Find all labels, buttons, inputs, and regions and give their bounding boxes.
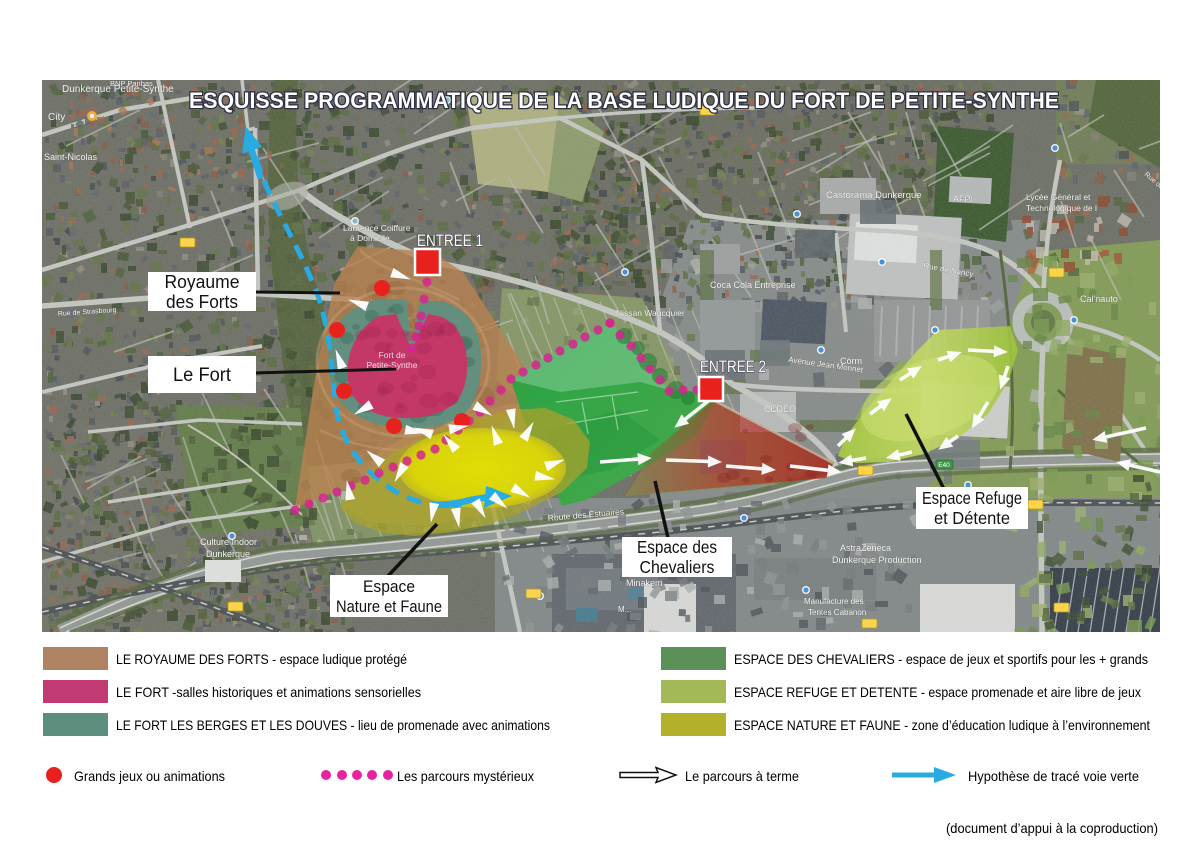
svg-text:Espace Refuge: Espace Refuge — [922, 488, 1022, 508]
svg-text:(document d’appui à la coprodu: (document d’appui à la coproduction) — [946, 820, 1158, 836]
svg-text:Lycée Général et: Lycée Général et — [1026, 192, 1091, 202]
svg-text:CEDEO: CEDEO — [764, 404, 796, 414]
svg-text:Hypothèse de tracé voie verte: Hypothèse de tracé voie verte — [968, 769, 1139, 784]
svg-text:AFPI: AFPI — [953, 194, 973, 204]
svg-text:Nature et Faune: Nature et Faune — [336, 597, 442, 616]
svg-text:des Forts: des Forts — [166, 291, 238, 312]
svg-text:Grands jeux ou animations: Grands jeux ou animations — [74, 769, 225, 784]
svg-text:Les parcours mystérieux: Les parcours mystérieux — [397, 769, 534, 784]
svg-text:ESQUISSE PROGRAMMATIQUE DE LA: ESQUISSE PROGRAMMATIQUE DE LA BASE LUDIQ… — [189, 88, 1059, 113]
svg-text:Cal'nauto: Cal'nauto — [1080, 294, 1118, 304]
svg-text:Tentes Cabanon: Tentes Cabanon — [808, 608, 866, 617]
svg-text:Fort de: Fort de — [379, 350, 406, 360]
svg-text:City: City — [48, 112, 65, 123]
svg-text:Minakem: Minakem — [626, 578, 663, 588]
svg-text:LE FORT LES BERGES ET LES DOUV: LE FORT LES BERGES ET LES DOUVES - lieu … — [116, 718, 550, 733]
svg-text:BNP Paribas: BNP Paribas — [110, 79, 153, 88]
svg-text:et Détente: et Détente — [934, 508, 1010, 528]
svg-text:Dunkerque: Dunkerque — [206, 549, 250, 559]
svg-text:à Domicile: à Domicile — [350, 233, 390, 243]
svg-text:Chevaliers: Chevaliers — [640, 557, 715, 577]
svg-text:ENTREE 1: ENTREE 1 — [417, 231, 483, 250]
svg-text:Dunkerque Production: Dunkerque Production — [832, 555, 922, 565]
svg-text:Saint-Nicolas: Saint-Nicolas — [44, 152, 98, 162]
svg-text:Espace des: Espace des — [637, 537, 717, 557]
svg-text:AstraZeneca: AstraZeneca — [840, 543, 891, 553]
svg-text:Le Fort: Le Fort — [173, 365, 232, 386]
svg-text:LE ROYAUME DES FORTS - espace: LE ROYAUME DES FORTS - espace ludique pr… — [116, 652, 407, 667]
svg-text:ESPACE DES CHEVALIERS - espace: ESPACE DES CHEVALIERS - espace de jeux e… — [734, 652, 1148, 667]
svg-text:ESPACE NATURE ET FAUNE - zone: ESPACE NATURE ET FAUNE - zone d’éducatio… — [734, 718, 1150, 733]
svg-text:E40: E40 — [938, 462, 950, 469]
svg-text:ENTREE 2: ENTREE 2 — [700, 357, 766, 376]
svg-text:Espace: Espace — [363, 577, 415, 596]
svg-text:ESPACE REFUGE ET DETENTE - esp: ESPACE REFUGE ET DETENTE - espace promen… — [734, 685, 1141, 700]
svg-text:Le parcours à terme: Le parcours à terme — [685, 769, 799, 784]
svg-text:LE FORT -salles historiques et: LE FORT -salles historiques et animation… — [116, 685, 421, 700]
svg-text:Coca Cola Entreprise: Coca Cola Entreprise — [710, 280, 796, 290]
svg-text:Manufacture des: Manufacture des — [804, 597, 864, 606]
svg-text:M...: M... — [618, 605, 631, 614]
svg-text:Royaume: Royaume — [165, 271, 240, 292]
svg-text:Nissan Waucquier: Nissan Waucquier — [616, 308, 685, 318]
svg-text:Culture Indoor: Culture Indoor — [200, 537, 257, 547]
svg-text:Technologique de l: Technologique de l — [1026, 203, 1097, 213]
svg-text:Castorama Dunkerque: Castorama Dunkerque — [826, 190, 922, 201]
